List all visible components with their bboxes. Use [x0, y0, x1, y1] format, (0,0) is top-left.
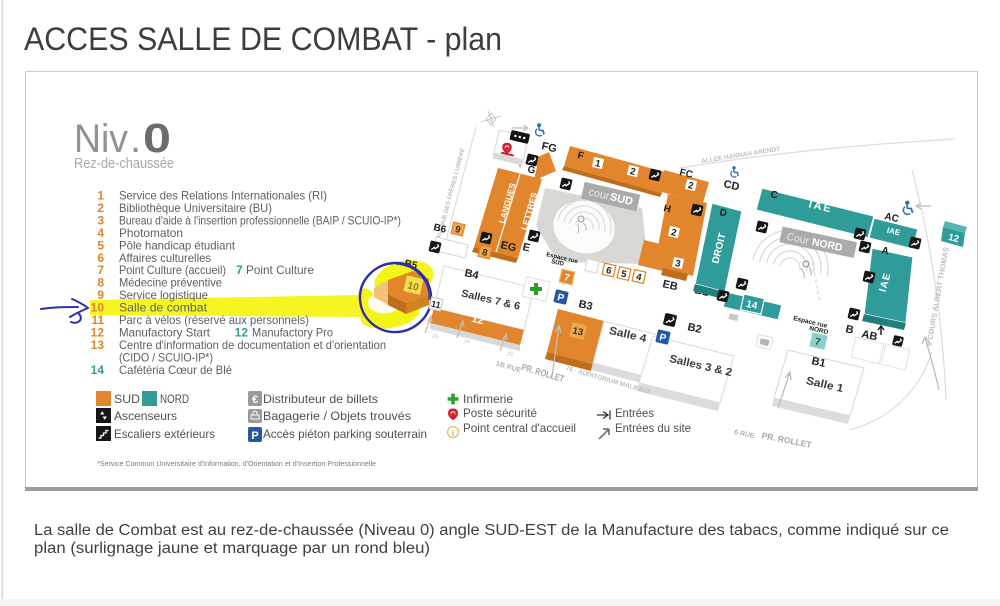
svg-text:Ascenseurs: Ascenseurs [114, 409, 177, 423]
svg-text:Point Culture: Point Culture [246, 263, 314, 277]
svg-text:NORD: NORD [160, 392, 189, 406]
svg-text:Poste sécurité: Poste sécurité [463, 406, 537, 420]
svg-text:Bagagerie / Objets trouvés: Bagagerie / Objets trouvés [263, 409, 411, 423]
svg-text:€: € [252, 394, 258, 406]
svg-text:SUD: SUD [114, 392, 140, 406]
svg-text:ACCES SALLE DE COMBAT - plan: ACCES SALLE DE COMBAT - plan [24, 21, 502, 57]
svg-text:P: P [251, 430, 258, 442]
svg-text:*Service Commun Universitaire: *Service Commun Universitaire d'Informat… [97, 459, 376, 468]
svg-text:Infirmerie: Infirmerie [463, 392, 513, 406]
svg-text:Distributeur de billets: Distributeur de billets [263, 392, 378, 406]
svg-text:La salle de Combat est au rez-: La salle de Combat est au rez-de-chaussé… [34, 522, 949, 539]
svg-text:Accès piéton parking souterrai: Accès piéton parking souterrain [263, 427, 427, 441]
svg-text:13: 13 [91, 338, 105, 352]
svg-text:Entrées du site: Entrées du site [615, 421, 691, 435]
svg-text:7: 7 [236, 263, 243, 277]
svg-text:Entrées: Entrées [615, 406, 654, 420]
svg-text:Escaliers extérieurs: Escaliers extérieurs [114, 427, 215, 441]
svg-text:i: i [452, 429, 454, 438]
svg-text:Rez-de-chaussée: Rez-de-chaussée [74, 155, 174, 172]
svg-text:Point central d'accueil: Point central d'accueil [463, 421, 576, 435]
svg-text:Cafétéria Cœur de Blé: Cafétéria Cœur de Blé [119, 363, 232, 377]
svg-text:plan (surlignage jaune et marq: plan (surlignage jaune et marquage par u… [34, 540, 430, 557]
svg-text:14: 14 [91, 363, 105, 377]
